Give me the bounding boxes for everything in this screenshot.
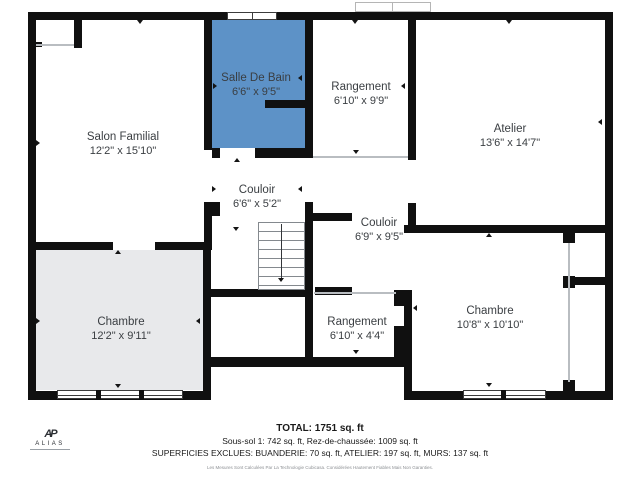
closet-partition-line bbox=[568, 243, 570, 382]
room-dimensions: 6'10" x 9'9" bbox=[331, 94, 390, 108]
measure-arrow bbox=[401, 83, 405, 89]
measure-arrow bbox=[115, 250, 121, 254]
excluded-areas-text: SUPERFICIES EXCLUES: BUANDERIE: 70 sq. f… bbox=[0, 448, 640, 458]
room-dimensions: 10'8" x 10'10" bbox=[457, 318, 523, 332]
window-well bbox=[355, 2, 431, 12]
room-name: Couloir bbox=[233, 183, 281, 197]
wall bbox=[74, 12, 82, 48]
room-label-chambre-gauche: Chambre 12'2" x 9'11" bbox=[91, 315, 151, 343]
room-name: Rangement bbox=[331, 80, 390, 94]
area-summary: TOTAL: 1751 sq. ft Sous-sol 1: 742 sq. f… bbox=[0, 423, 640, 458]
stair-direction-line bbox=[281, 224, 282, 278]
room-name: Atelier bbox=[480, 122, 540, 136]
wall bbox=[305, 12, 313, 158]
room-label-chambre-droite: Chambre 10'8" x 10'10" bbox=[457, 304, 523, 332]
room-name: Salle De Bain bbox=[221, 71, 291, 85]
room-dimensions: 6'6" x 5'2" bbox=[233, 197, 281, 211]
room-dimensions: 12'2" x 9'11" bbox=[91, 329, 151, 343]
measure-arrow bbox=[298, 75, 302, 81]
wall bbox=[305, 202, 313, 357]
measure-arrow bbox=[298, 186, 302, 192]
measure-arrow bbox=[352, 20, 358, 24]
room-dimensions: 6'10" x 4'4" bbox=[327, 329, 386, 343]
room-label-salle-de-bain: Salle De Bain 6'6" x 9'5" bbox=[221, 71, 291, 99]
opening-line bbox=[313, 156, 408, 158]
wall bbox=[563, 231, 575, 243]
room-label-rangement-haut: Rangement 6'10" x 9'9" bbox=[331, 80, 390, 108]
wall bbox=[404, 292, 412, 400]
window bbox=[57, 390, 183, 399]
wall bbox=[28, 12, 36, 400]
room-label-atelier: Atelier 13'6" x 14'7" bbox=[480, 122, 540, 150]
window-mullion bbox=[139, 390, 144, 399]
wall bbox=[404, 225, 613, 233]
measure-arrow bbox=[506, 20, 512, 24]
total-area-text: TOTAL: 1751 sq. ft bbox=[0, 423, 640, 434]
measure-arrow bbox=[115, 384, 121, 388]
disclaimer-text: Les Mesures Sont Calculées Par La Techno… bbox=[0, 465, 640, 470]
wall bbox=[204, 202, 220, 216]
room-label-rangement-bas: Rangement 6'10" x 4'4" bbox=[327, 315, 386, 343]
measure-arrow bbox=[212, 186, 216, 192]
window-well-divider bbox=[392, 2, 393, 12]
opening-line bbox=[314, 292, 396, 294]
wall bbox=[28, 12, 613, 20]
room-dimensions: 6'6" x 9'5" bbox=[221, 85, 291, 99]
room-label-couloir-droit: Couloir 6'9" x 9'5" bbox=[355, 216, 403, 244]
door-opening bbox=[113, 242, 155, 250]
door-opening bbox=[220, 148, 255, 158]
logo-monogram: AP bbox=[26, 429, 74, 440]
room-label-salon-familial: Salon Familial 12'2" x 15'10" bbox=[87, 130, 159, 158]
measure-arrow bbox=[213, 83, 217, 89]
window-mullion bbox=[96, 390, 101, 399]
wall bbox=[203, 250, 211, 400]
room-name: Salon Familial bbox=[87, 130, 159, 144]
measure-arrow bbox=[36, 318, 40, 324]
level-areas-text: Sous-sol 1: 742 sq. ft, Rez-de-chaussée:… bbox=[0, 436, 640, 446]
measure-arrow bbox=[598, 119, 602, 125]
logo-rule bbox=[30, 449, 70, 450]
measure-arrow bbox=[486, 383, 492, 387]
room-name: Chambre bbox=[91, 315, 151, 329]
opening-line bbox=[36, 44, 74, 46]
measure-arrow bbox=[137, 20, 143, 24]
measure-arrow bbox=[234, 158, 240, 162]
window-mullion bbox=[501, 390, 506, 399]
measure-arrow bbox=[233, 227, 239, 231]
alias-logo: AP ALIAS bbox=[26, 429, 74, 450]
room-dimensions: 12'2" x 15'10" bbox=[87, 144, 159, 158]
door-opening bbox=[394, 306, 404, 326]
stair-down-arrow bbox=[278, 278, 284, 282]
logo-brand-text: ALIAS bbox=[26, 441, 74, 447]
measure-arrow bbox=[413, 305, 417, 311]
wall bbox=[575, 277, 605, 285]
window bbox=[227, 12, 277, 20]
wall bbox=[204, 12, 212, 150]
measure-arrow bbox=[36, 140, 40, 146]
room-name: Chambre bbox=[457, 304, 523, 318]
room-name: Rangement bbox=[327, 315, 386, 329]
room-dimensions: 13'6" x 14'7" bbox=[480, 136, 540, 150]
measure-arrow bbox=[353, 150, 359, 154]
measure-arrow bbox=[486, 233, 492, 237]
wall bbox=[203, 357, 412, 367]
measure-arrow bbox=[196, 318, 200, 324]
wall bbox=[211, 289, 307, 297]
floor-plan: Salon Familial 12'2" x 15'10" Salle De B… bbox=[0, 0, 640, 480]
measure-arrow bbox=[353, 350, 359, 354]
room-label-couloir-haut: Couloir 6'6" x 5'2" bbox=[233, 183, 281, 211]
wall bbox=[313, 213, 352, 221]
room-dimensions: 6'9" x 9'5" bbox=[355, 230, 403, 244]
wall bbox=[605, 12, 613, 400]
wall bbox=[408, 12, 416, 160]
room-name: Couloir bbox=[355, 216, 403, 230]
